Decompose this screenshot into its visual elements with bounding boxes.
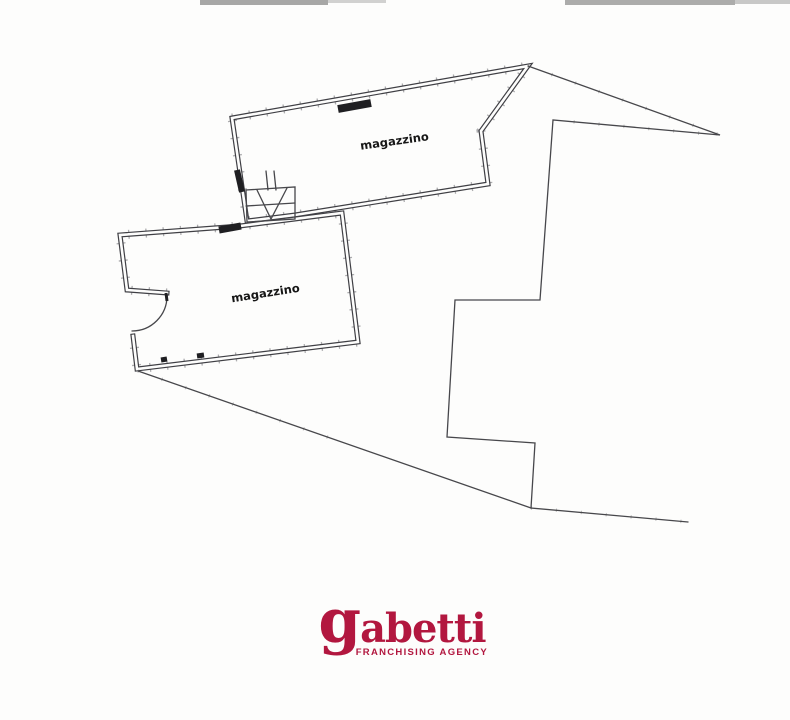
- scanned-floorplan-page: magazzino magazzino gabetti FRANCHISING …: [0, 0, 790, 720]
- terrain-boundary-diagonal: [138, 371, 531, 508]
- gabetti-logo: gabetti FRANCHISING AGENCY: [316, 599, 488, 658]
- room-label-lower: magazzino: [230, 281, 301, 306]
- terrain-speckle-right: [528, 66, 720, 522]
- room-label-upper: magazzino: [359, 129, 430, 153]
- window-marking-top-wall: [338, 103, 371, 109]
- door-swing-arc: [132, 296, 167, 331]
- wall-marking-lower-top: [219, 226, 241, 230]
- door-jamb-tick: [166, 293, 167, 301]
- gabetti-wordmark: gabetti: [316, 599, 488, 652]
- terrain-boundary-right: [447, 66, 720, 522]
